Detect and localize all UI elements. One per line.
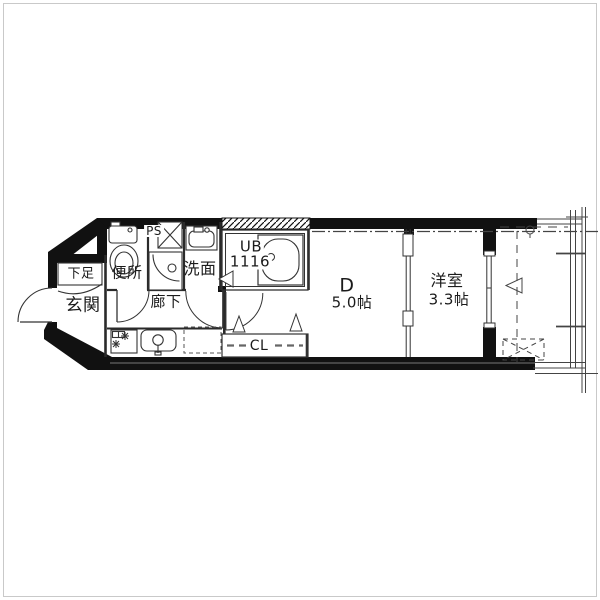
room-label-western-room-area: 3.3帖 [429, 293, 470, 308]
room-label-entrance: 玄関 [66, 298, 101, 315]
room-label-closet: CL [248, 339, 271, 353]
balcony-window [484, 251, 495, 328]
closet-door-mark [290, 314, 302, 331]
refrigerator-space [184, 327, 221, 353]
room-label-unit-bath-size: 1116 [228, 255, 272, 270]
room-label-western-room: 洋室 [430, 273, 463, 289]
entrance-door-arc [18, 288, 52, 322]
slope-triangle-mark [506, 278, 522, 293]
evacuation-hatch-icon [503, 339, 544, 360]
room-label-corridor: 廊下 [150, 295, 181, 310]
closet-door-mark [233, 316, 245, 332]
room-partition [403, 229, 413, 357]
room-label-toilet: 便所 [111, 266, 142, 281]
balcony-bottom-edge [530, 363, 586, 369]
room-label-shoe-storage: 下足 [67, 268, 94, 281]
room-label-pipe-space: PS [144, 225, 164, 237]
stove-icon [111, 330, 137, 353]
vanity-sink-icon [186, 226, 217, 250]
room-label-washroom: 洗面 [183, 261, 216, 277]
shower-unit-icon [149, 252, 182, 290]
floor-plan: 下足 玄関 便所 PS 洗面 UB 1116 廊下 D 5.0帖 洋室 3.3帖… [0, 0, 600, 600]
washroom-door-arc [186, 290, 223, 328]
balcony-railing [556, 207, 588, 393]
toilet-door-arc [117, 290, 149, 322]
room-label-dining-area: 5.0帖 [332, 296, 373, 311]
party-wall-hatch [222, 218, 310, 229]
kitchen-sink-icon [141, 330, 176, 355]
dining-door-arc [226, 292, 263, 330]
burner-marks [112, 332, 129, 348]
